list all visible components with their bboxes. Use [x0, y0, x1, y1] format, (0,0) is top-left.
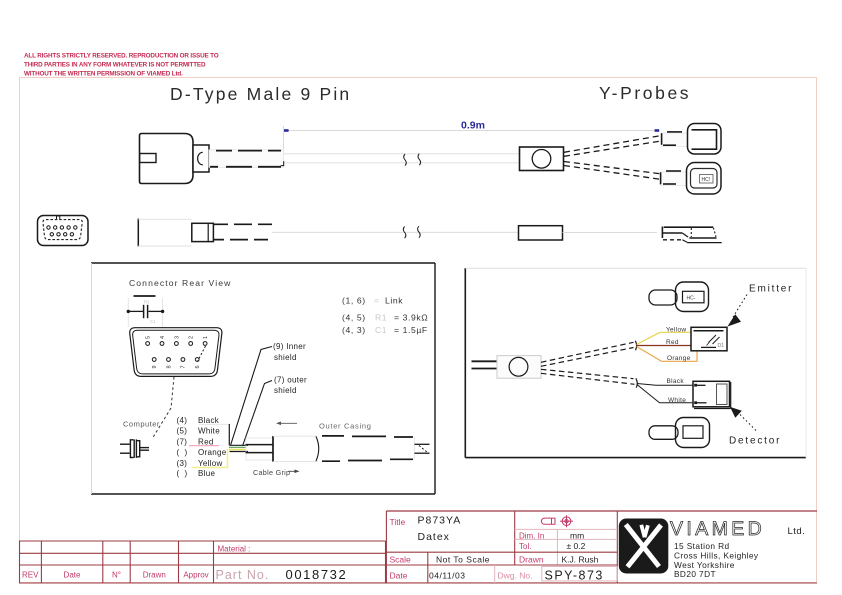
svg-text:9: 9 — [152, 365, 158, 368]
svg-text:ALL RIGHTS STRICTLY RESERVED.: ALL RIGHTS STRICTLY RESERVED. REPRODUCTI… — [24, 53, 219, 60]
svg-text:( ): ( ) — [177, 448, 188, 457]
svg-text:(1, 6): (1, 6) — [342, 296, 366, 306]
svg-text:Title: Title — [390, 517, 406, 527]
svg-text:Scale: Scale — [390, 555, 412, 565]
svg-text:R1: R1 — [144, 300, 150, 305]
svg-text:Emitter: Emitter — [749, 284, 793, 295]
svg-text:0.9m: 0.9m — [461, 120, 485, 132]
svg-text:Approv: Approv — [183, 570, 208, 579]
svg-text:15 Station Rd: 15 Station Rd — [674, 541, 729, 551]
svg-text:R1: R1 — [375, 313, 387, 323]
svg-text:(4, 5): (4, 5) — [342, 313, 366, 323]
svg-text:Black: Black — [667, 378, 685, 385]
svg-text:Orange: Orange — [198, 448, 227, 457]
svg-text:D-Type Male 9 Pin: D-Type Male 9 Pin — [170, 84, 351, 104]
svg-text:6: 6 — [195, 365, 201, 368]
svg-text:2: 2 — [189, 336, 195, 339]
svg-text:(7) outer: (7) outer — [274, 376, 307, 385]
svg-text:04/11/03: 04/11/03 — [429, 570, 465, 580]
svg-text:(4): (4) — [177, 416, 188, 425]
svg-text:White: White — [668, 397, 686, 404]
svg-text:HC-: HC- — [687, 296, 696, 302]
svg-text:BD20 7DT: BD20 7DT — [674, 569, 716, 579]
svg-text:Tol.: Tol. — [519, 542, 531, 551]
svg-text:Blue: Blue — [198, 469, 215, 478]
svg-text:Date: Date — [64, 570, 81, 579]
svg-text:White: White — [198, 427, 220, 436]
svg-text:8: 8 — [166, 365, 172, 368]
svg-text:Black: Black — [198, 416, 220, 425]
svg-text:Part No.: Part No. — [216, 568, 270, 582]
svg-text:Dim. In: Dim. In — [519, 532, 544, 541]
svg-text:(4, 3): (4, 3) — [342, 325, 366, 335]
svg-text:Orange: Orange — [667, 355, 691, 362]
svg-text:C1: C1 — [150, 319, 156, 324]
svg-text:5: 5 — [146, 336, 152, 339]
svg-text:3: 3 — [174, 336, 180, 339]
svg-text:Red: Red — [198, 437, 214, 446]
svg-text:Red: Red — [666, 339, 679, 346]
svg-text:mm: mm — [570, 531, 584, 541]
svg-text:(7): (7) — [177, 437, 188, 446]
svg-text:P873YA: P873YA — [418, 515, 462, 527]
svg-text:± 0.2: ± 0.2 — [567, 541, 586, 551]
svg-text:Computer: Computer — [123, 420, 160, 429]
svg-text:Cross Hills, Keighley: Cross Hills, Keighley — [674, 550, 759, 560]
svg-text:= 3.9kΩ: = 3.9kΩ — [394, 313, 428, 323]
svg-text:Detector: Detector — [729, 436, 781, 447]
svg-text:4: 4 — [160, 336, 166, 339]
svg-text:WITHOUT THE WRITTEN PERMISSION: WITHOUT THE WRITTEN PERMISSION OF VIAMED… — [24, 71, 183, 78]
svg-text:shield: shield — [274, 353, 297, 362]
svg-text:Dwg. No.: Dwg. No. — [498, 570, 533, 580]
svg-text:1: 1 — [203, 336, 209, 339]
svg-text:VIAMED: VIAMED — [670, 518, 765, 540]
svg-text:N°: N° — [112, 570, 121, 579]
svg-text:(5): (5) — [177, 427, 188, 436]
svg-text:Ltd.: Ltd. — [788, 526, 806, 537]
svg-text:= 1.5µF: = 1.5µF — [394, 325, 428, 335]
svg-text:Datex: Datex — [418, 531, 450, 543]
svg-text:SPY-873: SPY-873 — [545, 569, 604, 583]
svg-text:0018732: 0018732 — [286, 567, 348, 582]
svg-text:=: = — [374, 296, 380, 306]
svg-text:K.J. Rush: K.J. Rush — [562, 555, 599, 565]
svg-text:Date: Date — [390, 570, 408, 580]
svg-text:Material :: Material : — [218, 544, 251, 553]
svg-text:Outer Casing: Outer Casing — [319, 421, 372, 430]
svg-text:Cable Grip: Cable Grip — [253, 468, 290, 477]
svg-text:shield: shield — [274, 386, 297, 395]
svg-text:D1: D1 — [718, 343, 725, 349]
svg-text:( ): ( ) — [177, 469, 188, 478]
svg-text:Link: Link — [385, 296, 403, 306]
svg-text:C1: C1 — [375, 325, 387, 335]
svg-text:Drawn: Drawn — [143, 570, 166, 579]
svg-text:Y-Probes: Y-Probes — [599, 83, 691, 103]
svg-text:Drawn: Drawn — [519, 555, 544, 565]
svg-text:HC!: HC! — [702, 177, 711, 183]
svg-text:(9) Inner: (9) Inner — [273, 342, 306, 351]
svg-text:Yellow: Yellow — [666, 326, 686, 333]
svg-text:THIRD PARTIES IN ANY FORM WHAT: THIRD PARTIES IN ANY FORM WHATEVER IS NO… — [24, 62, 206, 69]
svg-text:7: 7 — [181, 365, 187, 368]
svg-text:(3): (3) — [177, 459, 188, 468]
svg-text:REV: REV — [22, 570, 39, 579]
svg-text:Not To Scale: Not To Scale — [436, 555, 490, 565]
svg-text:Connector Rear View: Connector Rear View — [129, 278, 231, 288]
